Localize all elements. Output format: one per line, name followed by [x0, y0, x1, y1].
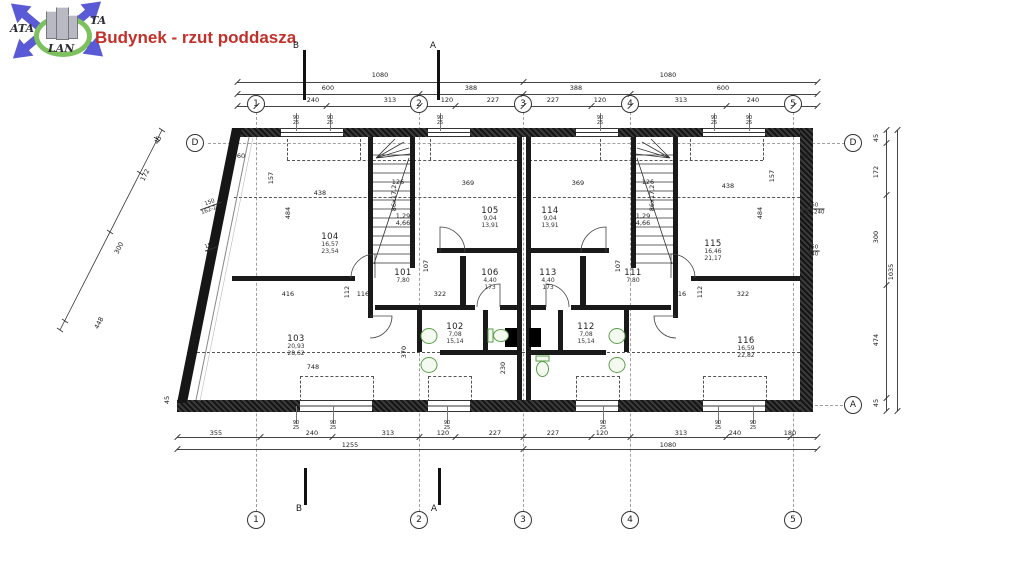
- room-label: 1127,0815,14: [577, 322, 594, 345]
- dim-label: 313: [384, 96, 396, 104]
- dim-label: 600: [322, 84, 334, 92]
- grid-letter-A: A: [844, 396, 862, 414]
- section-letter-B: B: [296, 504, 302, 514]
- slant-dim-line: [57, 128, 165, 332]
- dim-label: 112: [696, 286, 704, 298]
- grid-marker-1: 1: [247, 511, 265, 529]
- window-tick-label: 9025: [444, 421, 450, 431]
- plan-drawing: 1080108060038838860024031312022722712031…: [0, 0, 1024, 582]
- room-area: 13,91: [541, 223, 558, 230]
- dim-label: 112: [343, 286, 351, 298]
- grid-letter-D: D: [844, 134, 862, 152]
- dim-label: 45: [872, 134, 880, 142]
- dim-label: 300: [872, 231, 880, 243]
- dim-label: 313: [382, 429, 394, 437]
- slanted-wall: [177, 128, 242, 403]
- dim-label: 4,66: [636, 219, 650, 227]
- dim-label: 438: [722, 182, 734, 190]
- grid-marker-2: 2: [410, 511, 428, 529]
- dim-label: 227: [547, 429, 559, 437]
- section-letter-A: A: [430, 41, 436, 51]
- toilet-icon: [488, 329, 493, 342]
- sink-icon: [609, 329, 625, 344]
- window-tick-label: 9025: [597, 116, 603, 126]
- room-area: 28,62: [287, 351, 304, 358]
- dim-label: 416: [282, 290, 294, 298]
- room-area: 23,54: [321, 249, 338, 256]
- dim-label: 388: [570, 84, 582, 92]
- dim-label: 1080: [372, 71, 389, 79]
- dim-label: 227: [547, 96, 559, 104]
- dim-label: 600: [717, 84, 729, 92]
- sink-icon: [609, 358, 625, 373]
- room-label: 1149,0413,91: [541, 206, 558, 229]
- dim-label: 86x17,2: [390, 185, 398, 212]
- dim-label: 313: [675, 96, 687, 104]
- dim-label: 322: [737, 290, 749, 298]
- dim-label: 1080: [660, 441, 677, 449]
- room-label: 1064,40173: [481, 268, 498, 291]
- window-tick-label: 9025: [330, 421, 336, 431]
- window-tick-label: 9025: [327, 116, 333, 126]
- room-label: 1027,0815,14: [446, 322, 463, 345]
- room-area: 173: [539, 285, 556, 292]
- dim-label: 86x17,2: [648, 185, 656, 212]
- dim-label: 1080: [660, 71, 677, 79]
- dim-label: 474: [872, 334, 880, 346]
- section-letter-B: B: [293, 41, 299, 51]
- room-area: 21,17: [704, 256, 721, 263]
- dim-label: 748: [307, 363, 319, 371]
- dim-label: 120: [594, 96, 606, 104]
- dim-label: 438: [314, 189, 326, 197]
- dim-label: 227: [489, 429, 501, 437]
- section-letter-A: A: [431, 504, 437, 514]
- window-tick-label: 9025: [293, 421, 299, 431]
- knee-wall-label: 150240: [807, 245, 820, 258]
- window-tick-label: 9025: [293, 116, 299, 126]
- toilet-icon: [536, 356, 549, 361]
- room-label: 11516,4621,17: [704, 239, 721, 262]
- dim-label: 240: [307, 96, 319, 104]
- window-tick-label: 9025: [437, 116, 443, 126]
- dim-label: 1035: [887, 264, 895, 281]
- window-tick-label: 9025: [711, 116, 717, 126]
- room-area: 7,80: [624, 278, 641, 285]
- dim-label: 4,66: [396, 219, 410, 227]
- grid-marker-3: 3: [514, 511, 532, 529]
- room-area: 22,82: [737, 353, 754, 360]
- room-label: 10320,9328,62: [287, 334, 304, 357]
- dim-label: 240: [747, 96, 759, 104]
- dim-label: 157: [768, 170, 776, 182]
- floor-plan-page: ATA TA LAN Budynek - rzut poddasza: [0, 0, 1024, 582]
- dim-label: 45: [163, 396, 171, 404]
- dim-label: 157: [267, 172, 275, 184]
- window-tick-label: 9025: [715, 421, 721, 431]
- room-label: 1134,40173: [539, 268, 556, 291]
- room-label: 10416,5723,54: [321, 232, 338, 255]
- dim-label: 388: [465, 84, 477, 92]
- dim-label: 45: [872, 399, 880, 407]
- room-area: 173: [481, 285, 498, 292]
- window-tick-label: 9025: [750, 421, 756, 431]
- room-label: 1017,80: [394, 268, 411, 285]
- dim-label: 313: [675, 429, 687, 437]
- dim-label: 172: [872, 166, 880, 178]
- dim-label: 120: [441, 96, 453, 104]
- room-area: 15,14: [446, 339, 463, 346]
- plan-svg-overlay: [0, 0, 1024, 582]
- dim-label: 369: [572, 179, 584, 187]
- room-area: 7,80: [394, 278, 411, 285]
- dim-label: 240: [729, 429, 741, 437]
- grid-marker-5: 5: [784, 511, 802, 529]
- dim-label: 355: [210, 429, 222, 437]
- dim-label: 370: [400, 346, 408, 358]
- dim-label: 60: [802, 152, 810, 160]
- dim-label: 107: [614, 260, 622, 272]
- sink-icon: [421, 329, 437, 344]
- grid-letter-D: D: [186, 134, 204, 152]
- dim-label: 369: [462, 179, 474, 187]
- dim-label: 1255: [342, 441, 359, 449]
- toilet-icon: [494, 330, 509, 342]
- dim-label: 60: [237, 152, 245, 160]
- dim-label: 484: [284, 207, 292, 219]
- dim-label: 322: [434, 290, 446, 298]
- room-area: 15,14: [577, 339, 594, 346]
- dim-label: 227: [487, 96, 499, 104]
- toilet-icon: [537, 362, 549, 377]
- window-tick-label: 9025: [746, 116, 752, 126]
- dim-label: 484: [756, 207, 764, 219]
- window-tick-label: 9025: [600, 421, 606, 431]
- knee-wall-label: 150162-240: [802, 203, 825, 216]
- dim-label: 116: [674, 290, 686, 298]
- room-label: 11616,5922,82: [737, 336, 754, 359]
- room-area: 13,91: [481, 223, 498, 230]
- dim-label: 116: [357, 290, 369, 298]
- room-label: 1059,0413,91: [481, 206, 498, 229]
- sink-icon: [421, 358, 437, 373]
- dim-label: 107: [422, 260, 430, 272]
- room-label: 1117,80: [624, 268, 641, 285]
- dim-label: 230: [499, 362, 507, 374]
- dim-label: 240: [306, 429, 318, 437]
- grid-marker-4: 4: [621, 511, 639, 529]
